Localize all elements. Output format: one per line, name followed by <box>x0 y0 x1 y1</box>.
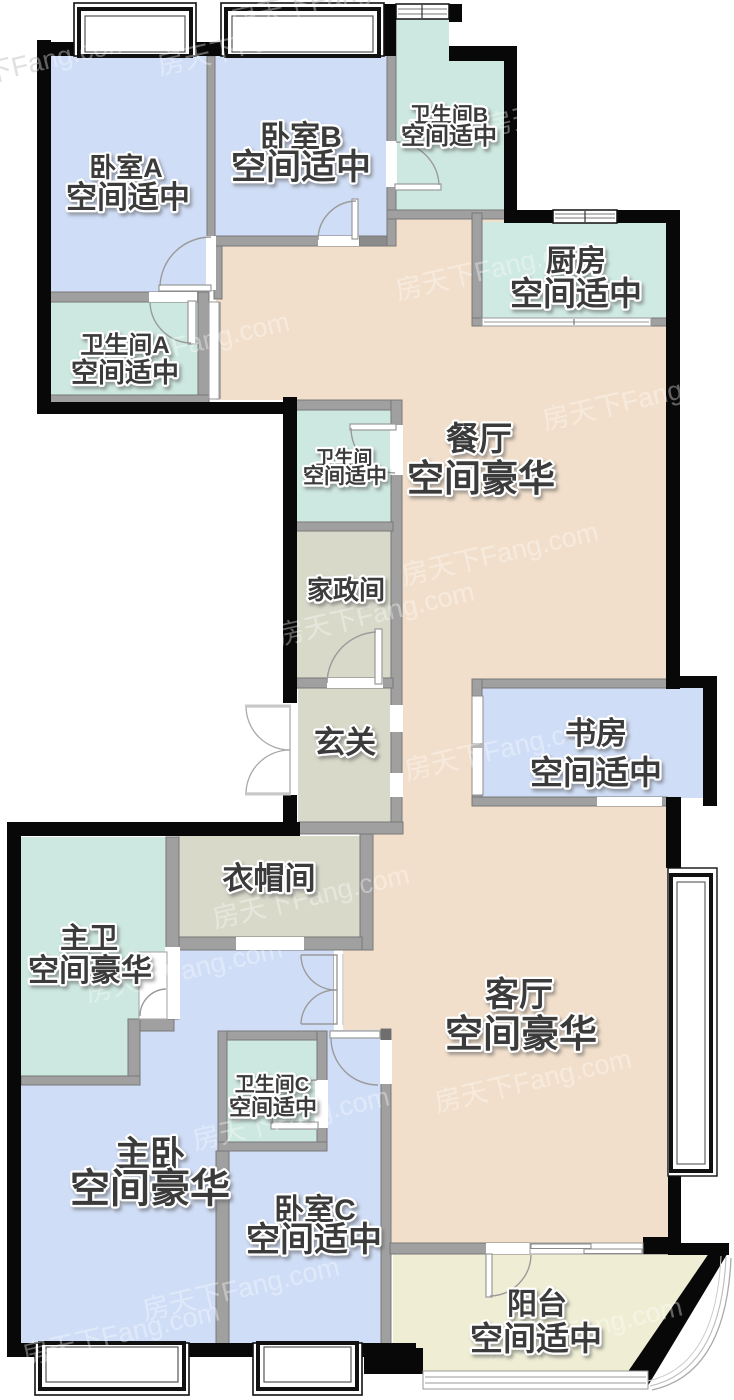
svg-text:空间适中: 空间适中 <box>401 122 497 150</box>
svg-text:空间适中: 空间适中 <box>66 180 190 215</box>
svg-text:衣帽间: 衣帽间 <box>223 861 316 896</box>
svg-text:餐厅: 餐厅 <box>446 420 512 457</box>
svg-text:客厅: 客厅 <box>485 975 553 1014</box>
svg-text:空间适中: 空间适中 <box>71 357 179 388</box>
svg-text:空间适中: 空间适中 <box>246 1221 382 1259</box>
svg-text:厨房: 厨房 <box>546 245 606 278</box>
svg-text:空间适中: 空间适中 <box>510 275 642 312</box>
svg-text:空间适中: 空间适中 <box>229 1095 317 1120</box>
svg-text:家政间: 家政间 <box>307 575 385 605</box>
svg-text:主卫: 主卫 <box>60 922 118 955</box>
svg-text:书房: 书房 <box>565 716 627 751</box>
svg-text:卫生间C: 卫生间C <box>235 1073 309 1096</box>
svg-text:空间豪华: 空间豪华 <box>28 953 152 988</box>
svg-text:卧室A: 卧室A <box>89 152 163 183</box>
svg-text:空间豪华: 空间豪华 <box>445 1014 597 1056</box>
svg-text:阳台: 阳台 <box>507 1287 567 1321</box>
svg-text:空间适中: 空间适中 <box>530 754 662 791</box>
svg-text:空间适中: 空间适中 <box>231 148 371 187</box>
svg-text:空间豪华: 空间豪华 <box>407 458 555 499</box>
svg-text:空间适中: 空间适中 <box>470 1320 602 1357</box>
svg-text:空间豪华: 空间豪华 <box>70 1167 230 1211</box>
svg-text:卫生间A: 卫生间A <box>80 332 169 359</box>
svg-text:玄关: 玄关 <box>314 725 376 760</box>
svg-text:空间适中: 空间适中 <box>303 464 387 488</box>
